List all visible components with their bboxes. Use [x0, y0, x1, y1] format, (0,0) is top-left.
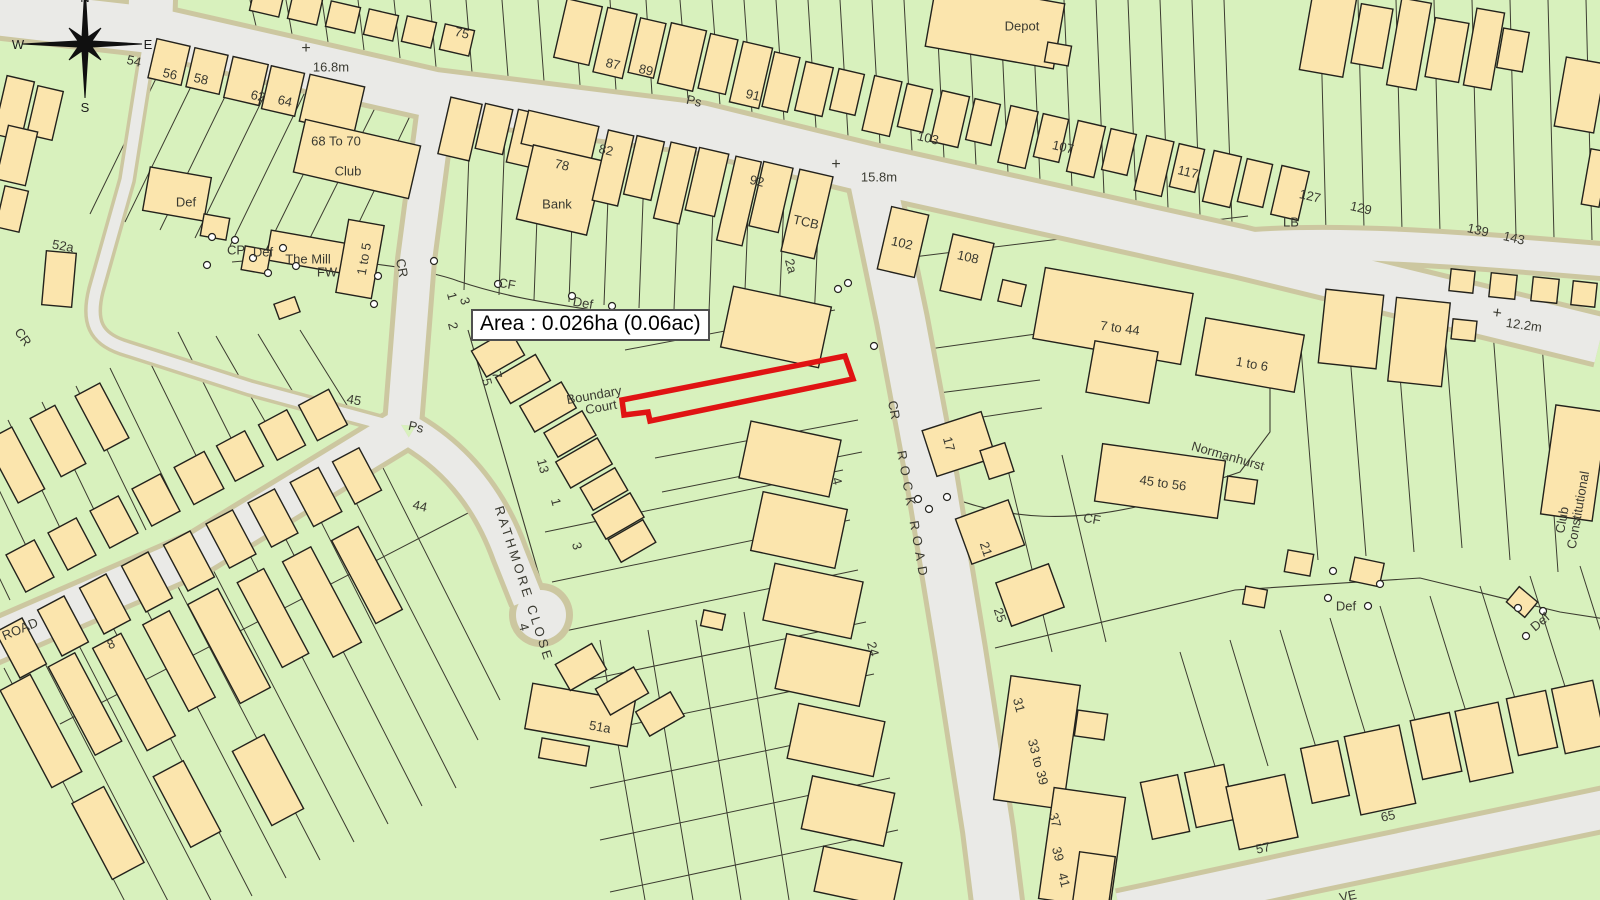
map-label: 13: [535, 457, 552, 474]
map-label: 44: [411, 498, 428, 514]
map-label: 52a: [51, 238, 75, 255]
map-label: CF: [1082, 511, 1101, 527]
map-label: Court: [584, 398, 618, 417]
map-label: Def: [1336, 599, 1356, 612]
map-label: 68 To 70: [311, 134, 361, 147]
spot-height-label: 15.8m: [861, 170, 897, 183]
road-label-partial: ROAD: [0, 616, 40, 643]
map-label: 78: [553, 157, 570, 173]
map-label: 89: [637, 62, 654, 78]
map-label: 2: [446, 321, 461, 331]
road-label-rock-road: ROCK ROAD: [895, 449, 931, 582]
map-label: 64: [276, 93, 293, 109]
map-label: 82: [597, 142, 614, 158]
map-label: 65: [1380, 808, 1397, 824]
map-label: 62: [249, 88, 266, 104]
map-canvas[interactable]: N E S W 545658626468 To 70Club+16.8m7587…: [0, 0, 1600, 900]
map-label: 3: [570, 541, 585, 551]
spot-height-marker: +: [831, 157, 840, 173]
map-label: 56: [161, 66, 178, 82]
spot-height-label: 16.8m: [313, 60, 349, 73]
map-label: 21: [977, 540, 994, 558]
map-label: Club: [335, 164, 362, 177]
map-label: 87: [604, 56, 621, 72]
map-label: 17: [941, 435, 958, 452]
road-label-rathmore-close: RATHMORE CLOSE: [492, 504, 555, 663]
map-label: CP: [227, 243, 245, 256]
map-label: CR: [886, 400, 902, 421]
map-label: 54: [125, 53, 142, 69]
map-label: 4: [830, 476, 845, 486]
map-label: Def: [253, 245, 273, 258]
map-label: 51a: [588, 719, 612, 736]
map-label: 2a: [783, 257, 800, 274]
map-label: 92: [748, 173, 765, 189]
map-label: LB: [1283, 215, 1299, 228]
area-measurement-box: Area : 0.026ha (0.06ac): [471, 309, 710, 341]
map-label: Ps: [407, 419, 425, 435]
map-label: 127: [1298, 187, 1322, 205]
map-label: 31: [1011, 696, 1028, 713]
map-labels-layer: 545658626468 To 70Club+16.8m758789Ps9182…: [0, 0, 1600, 900]
map-label: 117: [1176, 163, 1199, 181]
map-label: 37: [1047, 811, 1064, 828]
road-label-partial: VE: [1338, 888, 1358, 900]
map-label: 1 to 5: [355, 242, 374, 276]
map-label: Normanhurst: [1190, 439, 1266, 472]
map-label: 58: [192, 71, 209, 87]
map-label: Bank: [542, 197, 572, 210]
map-label: TCB: [792, 213, 820, 232]
map-label: 39: [1050, 845, 1067, 862]
map-label: 108: [956, 248, 980, 266]
map-label: 1 to 6: [1235, 355, 1269, 374]
map-label: 57: [1255, 840, 1272, 856]
map-label: Def: [1528, 610, 1552, 633]
map-label: 24: [865, 640, 882, 657]
map-label: 103: [916, 129, 940, 147]
map-label: 129: [1349, 199, 1373, 217]
map-label: 45 to 56: [1139, 473, 1187, 493]
spot-height-marker: +: [1491, 305, 1503, 322]
area-measurement-text: Area : 0.026ha (0.06ac): [480, 312, 701, 335]
map-label: 107: [1051, 138, 1075, 156]
map-label: 33 to 39: [1026, 738, 1051, 787]
spot-height-marker: +: [301, 41, 310, 57]
map-label: Depot: [1005, 19, 1040, 32]
map-label: 139: [1466, 221, 1490, 239]
map-label: CF: [497, 276, 516, 292]
spot-height-label: 12.2m: [1505, 316, 1543, 334]
map-label: 102: [890, 234, 914, 252]
map-label: 7 to 44: [1099, 319, 1140, 338]
map-label: 5: [480, 377, 495, 387]
map-label: Ps: [685, 93, 703, 109]
map-label: 25: [991, 606, 1008, 624]
map-label: 45: [346, 392, 363, 408]
map-label: 75: [453, 25, 470, 41]
map-label: 1: [549, 497, 564, 507]
map-label: Def: [176, 195, 196, 208]
map-label: 91: [744, 87, 761, 103]
map-label: 41: [1056, 871, 1073, 888]
map-label: CR: [394, 258, 410, 279]
map-label: 8: [105, 636, 117, 651]
map-label: 143: [1502, 229, 1526, 247]
map-label: FW: [317, 265, 337, 278]
map-label: CR: [12, 326, 34, 349]
